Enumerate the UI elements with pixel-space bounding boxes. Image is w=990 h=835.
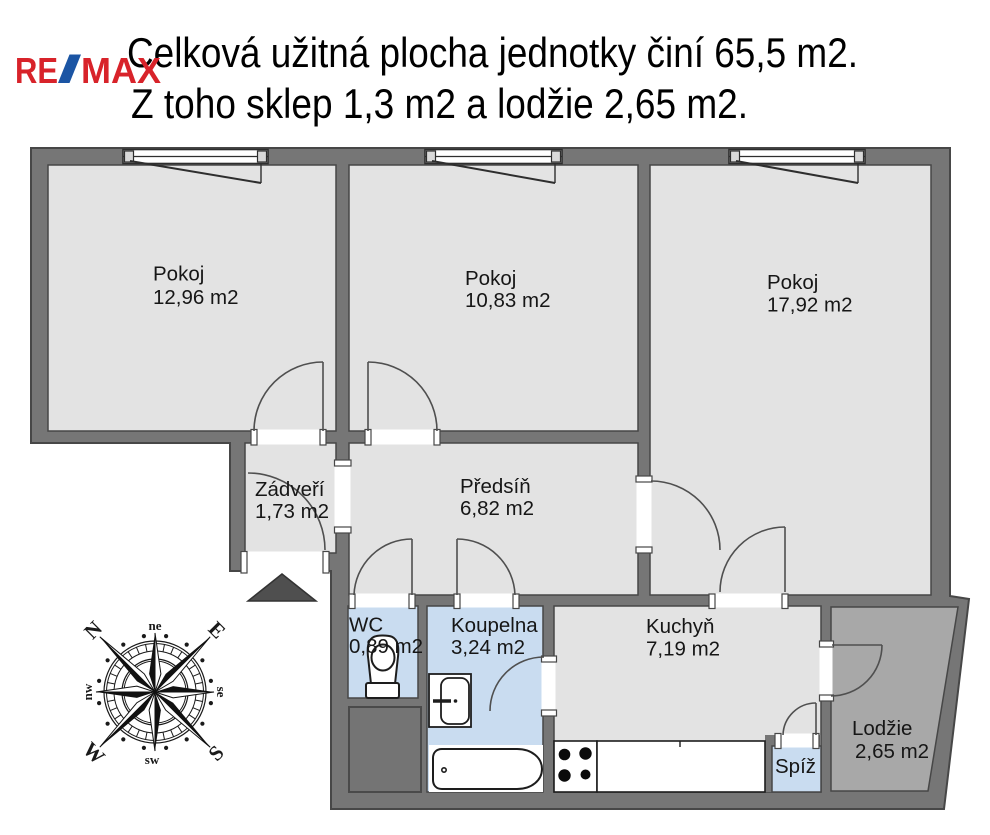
svg-text:12,96 m2: 12,96 m2 <box>153 286 238 309</box>
svg-text:Koupelna: Koupelna <box>451 614 538 637</box>
svg-text:se: se <box>214 687 229 698</box>
svg-text:MAX: MAX <box>81 50 161 91</box>
svg-text:Předsíň: Předsíň <box>460 475 531 498</box>
svg-text:S: S <box>203 740 228 765</box>
svg-text:6,82 m2: 6,82 m2 <box>460 497 534 520</box>
svg-text:Kuchyň: Kuchyň <box>646 615 714 638</box>
svg-text:0,89 m2: 0,89 m2 <box>349 635 423 658</box>
svg-text:ne: ne <box>149 618 162 633</box>
svg-text:Spíž: Spíž <box>775 755 816 778</box>
svg-text:3,24 m2: 3,24 m2 <box>451 636 525 659</box>
svg-text:WC: WC <box>349 614 383 637</box>
svg-text:Z toho sklep 1,3 m2 a lodžie 2: Z toho sklep 1,3 m2 a lodžie 2,65 m2. <box>131 80 748 127</box>
svg-text:10,83 m2: 10,83 m2 <box>465 289 550 312</box>
svg-text:Lodžie: Lodžie <box>852 717 912 740</box>
svg-text:Pokoj: Pokoj <box>153 263 204 286</box>
svg-text:Pokoj: Pokoj <box>767 271 818 294</box>
svg-text:7,19 m2: 7,19 m2 <box>646 638 720 661</box>
svg-text:Celková užitná plocha jednotky: Celková užitná plocha jednotky činí 65,5… <box>127 29 858 76</box>
svg-text:2,65 m2: 2,65 m2 <box>855 740 929 763</box>
svg-text:nw: nw <box>80 683 95 700</box>
svg-text:RE: RE <box>15 50 58 91</box>
svg-text:17,92 m2: 17,92 m2 <box>767 294 852 317</box>
svg-text:1,73 m2: 1,73 m2 <box>255 500 329 523</box>
svg-text:Pokoj: Pokoj <box>465 267 516 290</box>
svg-text:sw: sw <box>145 752 160 767</box>
svg-text:Zádveří: Zádveří <box>255 478 325 501</box>
